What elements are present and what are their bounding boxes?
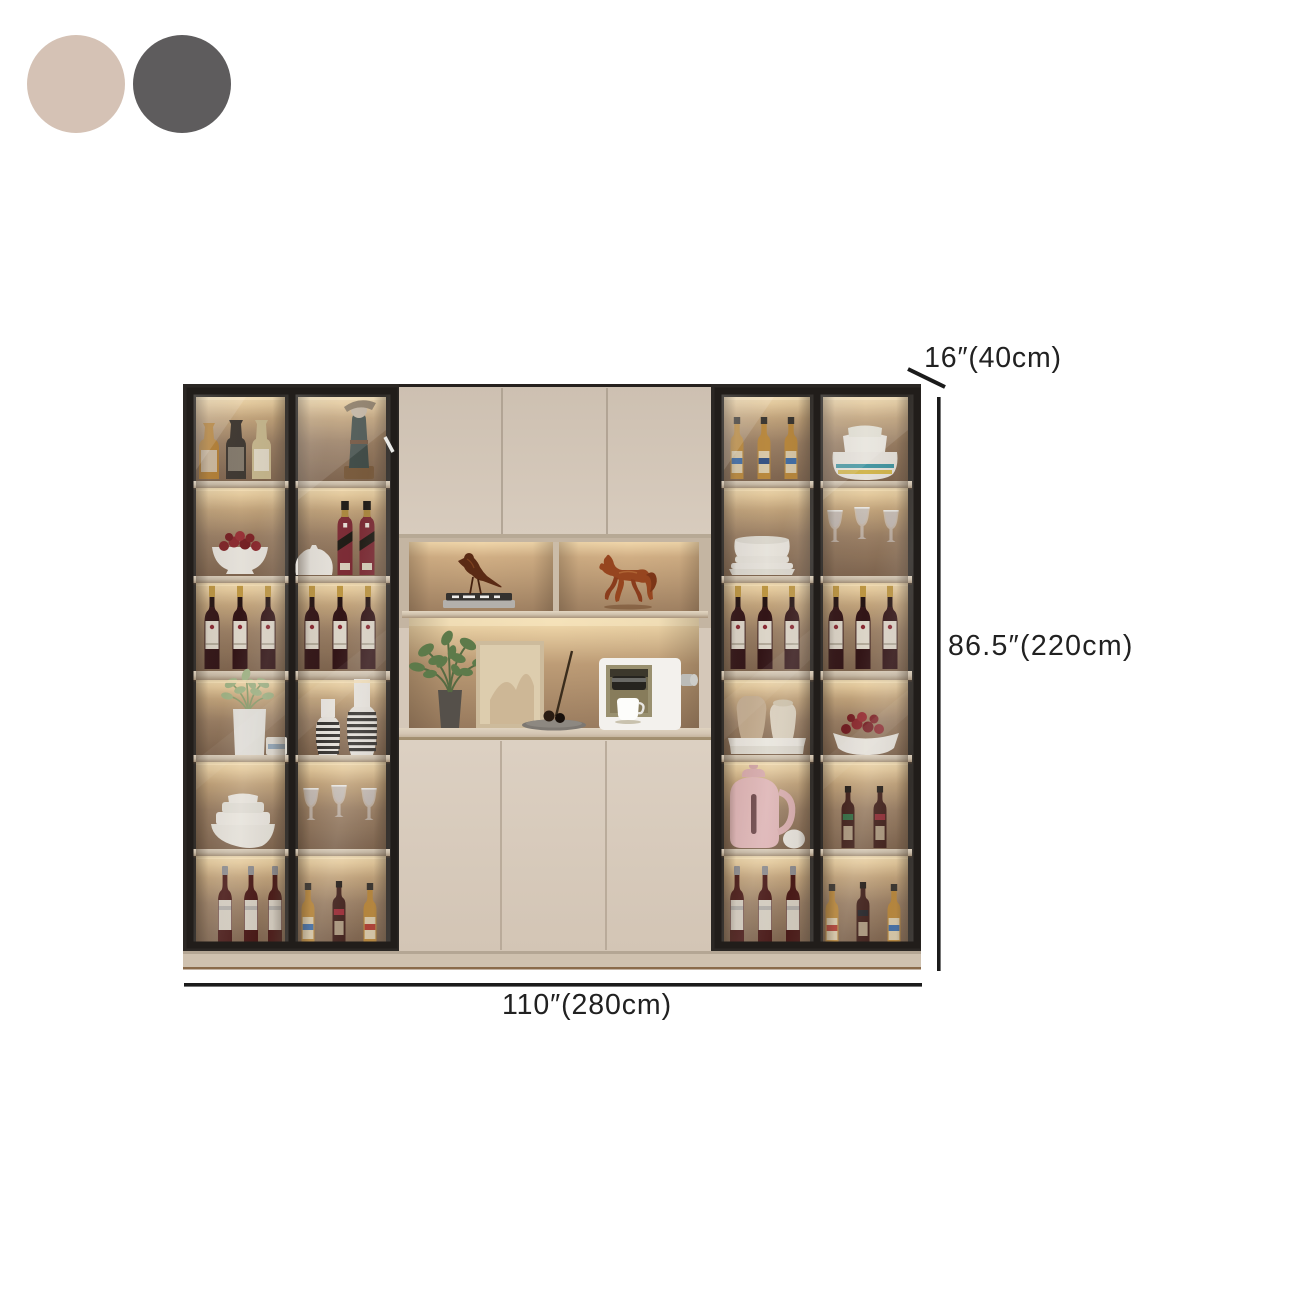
svg-text:16″(40cm): 16″(40cm) [924,342,1062,374]
svg-text:110″(280cm): 110″(280cm) [502,989,672,1021]
svg-text:86.5″(220cm): 86.5″(220cm) [948,630,1134,662]
